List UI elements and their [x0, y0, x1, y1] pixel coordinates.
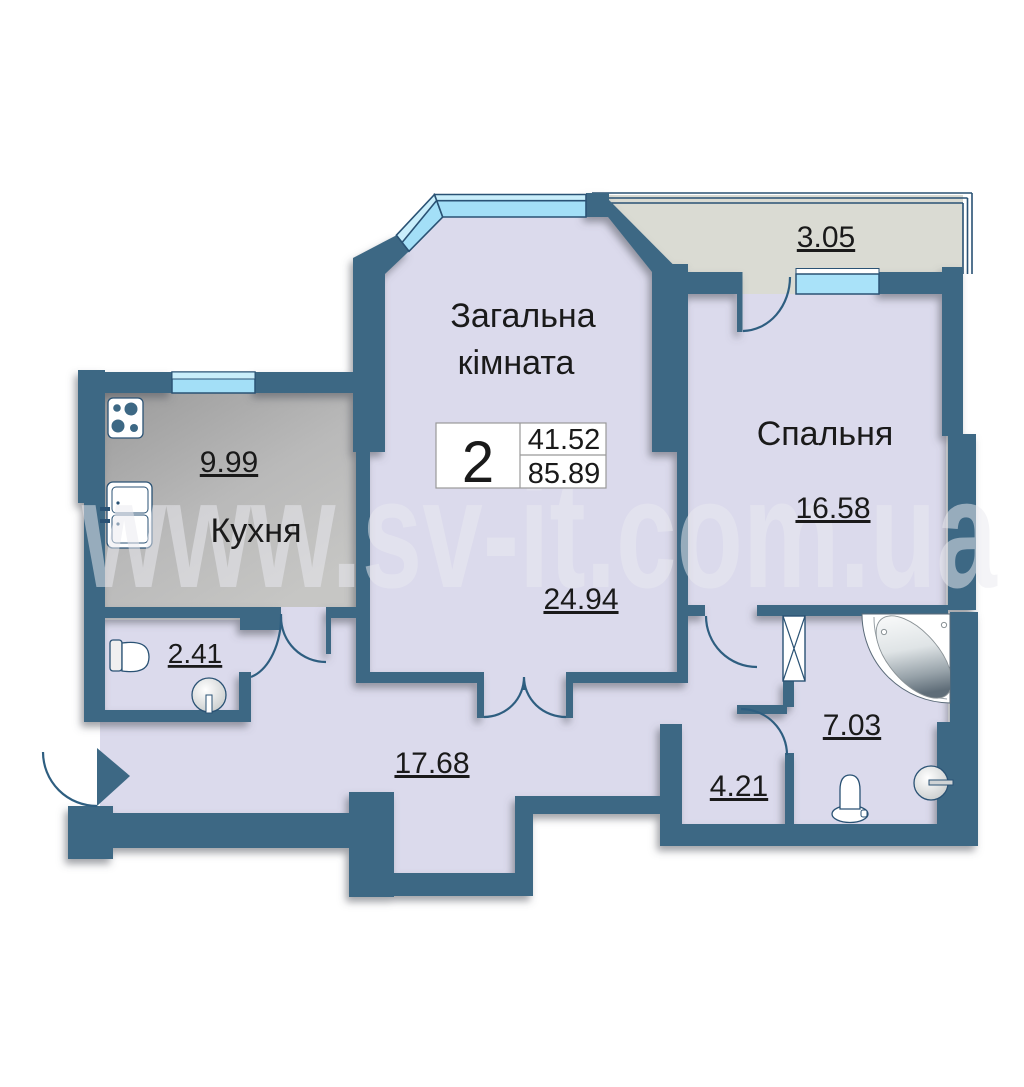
svg-text:16.58: 16.58	[795, 492, 870, 525]
svg-text:85.89: 85.89	[528, 458, 601, 490]
svg-text:Спальня: Спальня	[757, 415, 894, 453]
svg-text:17.68: 17.68	[394, 747, 469, 780]
svg-text:24.94: 24.94	[543, 583, 618, 616]
svg-text:9.99: 9.99	[200, 446, 258, 479]
svg-text:Кухня: Кухня	[211, 512, 302, 550]
svg-text:2.41: 2.41	[168, 638, 223, 669]
svg-text:7.03: 7.03	[823, 709, 881, 742]
svg-text:кімната: кімната	[458, 344, 575, 382]
svg-text:41.52: 41.52	[528, 424, 601, 456]
svg-text:4.21: 4.21	[710, 770, 768, 803]
svg-text:3.05: 3.05	[797, 221, 855, 254]
svg-text:Загальна: Загальна	[450, 297, 595, 335]
svg-text:2: 2	[462, 430, 494, 495]
